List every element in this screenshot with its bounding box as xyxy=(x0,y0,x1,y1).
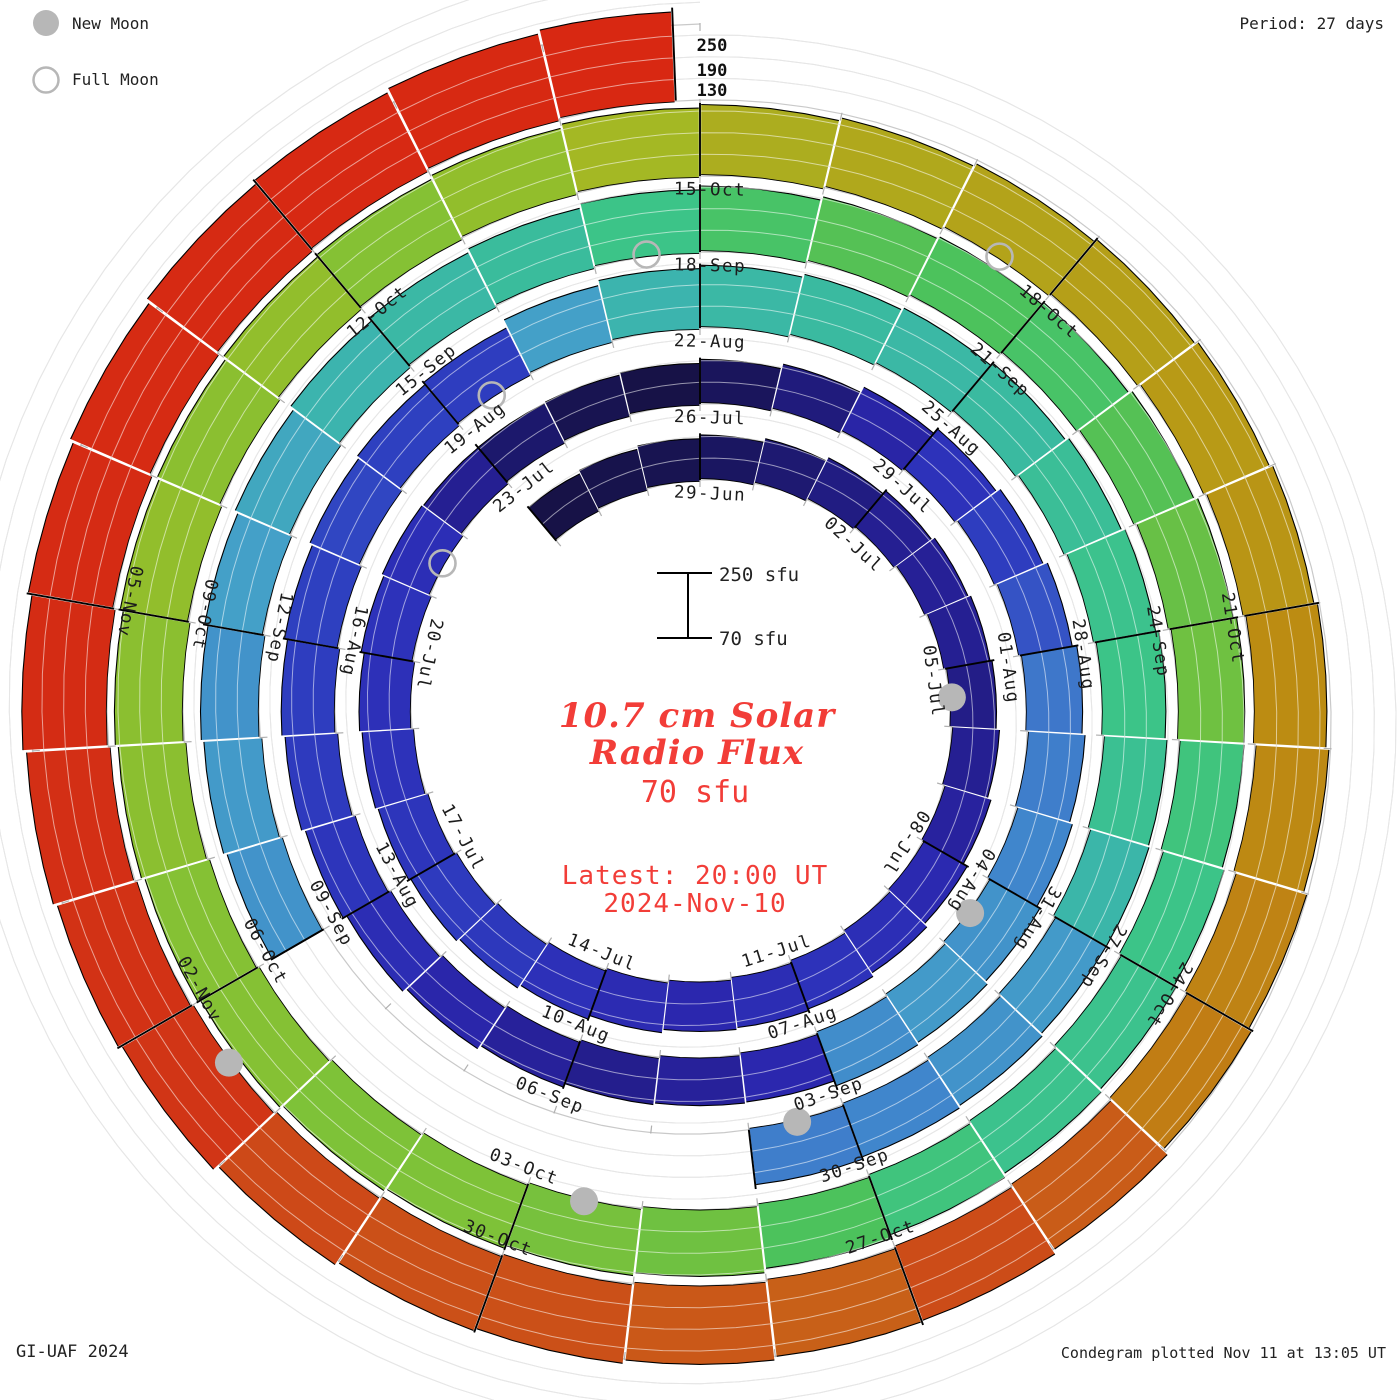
flux-bar xyxy=(204,738,279,853)
new-moon-label: New Moon xyxy=(72,14,149,33)
flux-bar xyxy=(362,729,425,808)
new-moon-icon xyxy=(33,10,59,36)
flux-bar xyxy=(1088,736,1167,845)
flux-bar xyxy=(22,596,115,751)
day-tick xyxy=(427,169,431,176)
latest-time-label: Latest: 20:00 UT xyxy=(562,862,828,891)
latest-date-label: 2024-Nov-10 xyxy=(603,890,786,919)
day-tick xyxy=(966,1116,970,1123)
flux-bar xyxy=(626,1282,775,1364)
day-tick xyxy=(1199,494,1206,497)
day-tick xyxy=(1268,464,1275,467)
day-tick xyxy=(496,305,500,312)
new-moon-marker xyxy=(215,1049,243,1077)
radial-axis-130: 130 xyxy=(697,81,728,101)
flux-bars xyxy=(22,12,1329,1364)
day-tick xyxy=(462,237,466,244)
date-label: 26-Jul xyxy=(674,407,747,429)
period-label: Period: 27 days xyxy=(1240,14,1385,33)
chart-title-line2: Radio Flux xyxy=(590,735,804,772)
day-tick xyxy=(950,521,956,526)
scale-max-label: 250 sfu xyxy=(719,564,799,586)
date-label: 15-Oct xyxy=(674,179,747,200)
flux-bar xyxy=(1234,746,1329,892)
flux-bar xyxy=(201,626,265,740)
date-label: 22-Aug xyxy=(674,331,747,353)
day-tick xyxy=(1129,524,1136,527)
flux-bar xyxy=(664,980,737,1031)
day-tick xyxy=(385,1004,391,1009)
day-tick xyxy=(989,584,996,587)
chart-title-line1: 10.7 cm Solar xyxy=(559,698,835,735)
day-tick xyxy=(882,989,886,996)
flux-bar xyxy=(27,748,134,905)
condegram-page: 29-Jun02-Jul05-Jul08-Jul11-Jul14-Jul17-J… xyxy=(0,0,1400,1400)
day-tick xyxy=(564,441,568,448)
scale-min-label: 70 sfu xyxy=(719,628,788,650)
day-tick xyxy=(464,1065,468,1072)
date-label: 18-Sep xyxy=(674,255,747,277)
flux-bar xyxy=(281,640,339,735)
flux-bar xyxy=(638,439,700,488)
full-moon-label: Full Moon xyxy=(72,70,159,89)
radial-axis-250: 250 xyxy=(697,36,728,56)
day-tick xyxy=(530,373,534,380)
flux-bar xyxy=(655,1056,745,1106)
flux-bar xyxy=(599,269,700,340)
day-tick xyxy=(598,509,602,516)
flux-bar xyxy=(701,435,764,485)
current-flux-value: 70 sfu xyxy=(641,777,749,809)
credit-label: GI-UAF 2024 xyxy=(16,1342,129,1362)
day-tick xyxy=(924,1053,928,1060)
day-tick xyxy=(920,614,927,617)
day-tick xyxy=(1008,1180,1012,1187)
new-moon-marker xyxy=(570,1187,598,1215)
day-tick xyxy=(556,540,561,546)
flux-scale-bar xyxy=(657,573,712,638)
plotted-label: Condegram plotted Nov 11 at 13:05 UT xyxy=(1061,1344,1386,1362)
day-tick xyxy=(890,566,896,571)
day-tick xyxy=(841,926,845,933)
flux-bar xyxy=(1246,604,1327,747)
day-tick xyxy=(1011,475,1017,480)
radial-axis-190: 190 xyxy=(697,61,728,81)
flux-bar xyxy=(285,734,352,831)
full-moon-icon xyxy=(34,68,59,93)
day-tick xyxy=(1133,385,1139,390)
flux-bar xyxy=(1161,741,1244,867)
moon-legend-icons xyxy=(28,4,68,104)
day-tick xyxy=(1072,430,1078,435)
date-label: 29-Jun xyxy=(673,483,746,506)
day-tick xyxy=(1059,554,1066,557)
flux-bar xyxy=(636,1207,765,1277)
